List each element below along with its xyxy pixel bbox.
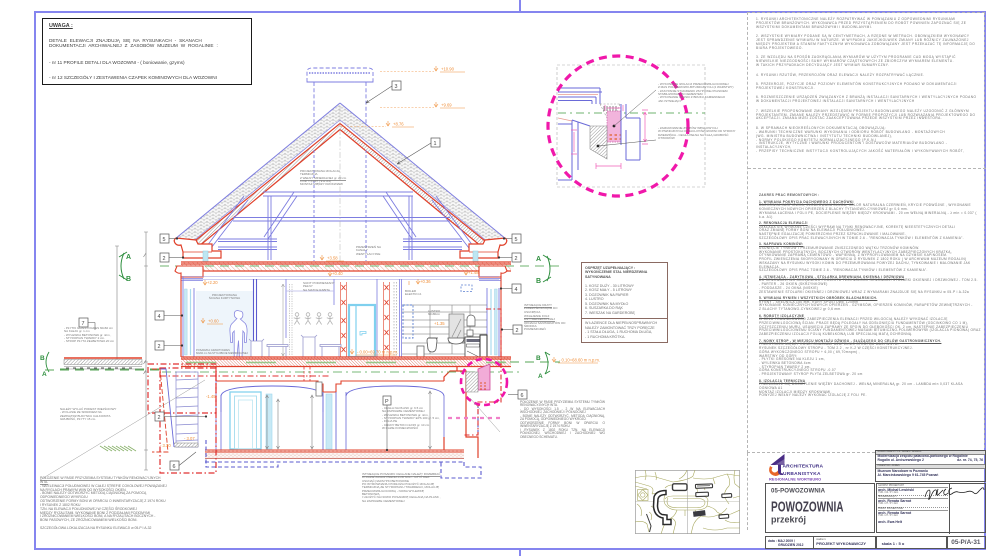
svg-text:+0.36: +0.36 [420,279,431,284]
svg-text:+9.69: +9.69 [441,103,452,108]
svg-text:+3.58: +3.58 [327,256,338,261]
svg-text:- 3.30: - 3.30 [160,443,171,448]
svg-text:1: 1 [434,141,437,147]
svg-text:-1.45: -1.45 [206,394,216,399]
svg-text:A: A [126,254,131,261]
svg-text:REGIONALNE WORTBURO: REGIONALNE WORTBURO [769,477,821,482]
svg-text:2: 2 [515,256,518,262]
svg-text:6: 6 [173,464,176,470]
svg-text:5: 5 [163,237,166,243]
svg-text:B: B [126,276,131,283]
svg-text:B: B [536,278,541,285]
svg-text:6: 6 [521,393,524,399]
svg-text:B: B [536,355,541,362]
svg-text:+0.40: +0.40 [332,271,343,276]
svg-text:P: P [385,399,389,405]
svg-text:4: 4 [515,287,518,293]
svg-text:ARCHITEKTURA: ARCHITEKTURA [783,464,824,470]
svg-text:B: B [40,355,45,362]
svg-text:A: A [536,256,541,263]
svg-text:2: 2 [516,328,519,334]
svg-text:+8.76: +8.76 [393,122,404,127]
svg-text:- 3.07: - 3.07 [184,436,195,441]
svg-text:2: 2 [158,415,161,421]
svg-text:2: 2 [158,344,161,350]
svg-text:- 0.10=68.60 m n.p.m.: - 0.10=68.60 m n.p.m. [559,358,600,363]
svg-text:A: A [538,373,543,380]
svg-text:+0.60: +0.60 [208,319,219,324]
svg-text:+10.90: +10.90 [441,67,455,72]
svg-text:+2.20: +2.20 [207,280,218,285]
svg-text:+1.35: +1.35 [434,321,445,326]
svg-text:A: A [42,371,47,378]
svg-text:+1.48: +1.48 [468,270,479,275]
svg-text:4: 4 [158,314,161,320]
svg-text:3: 3 [395,84,398,90]
svg-text:- 0.00=69.70 m n.p.m.: - 0.00=69.70 m n.p.m. [357,350,398,355]
svg-text:5: 5 [515,237,518,243]
svg-text:2: 2 [163,256,166,262]
